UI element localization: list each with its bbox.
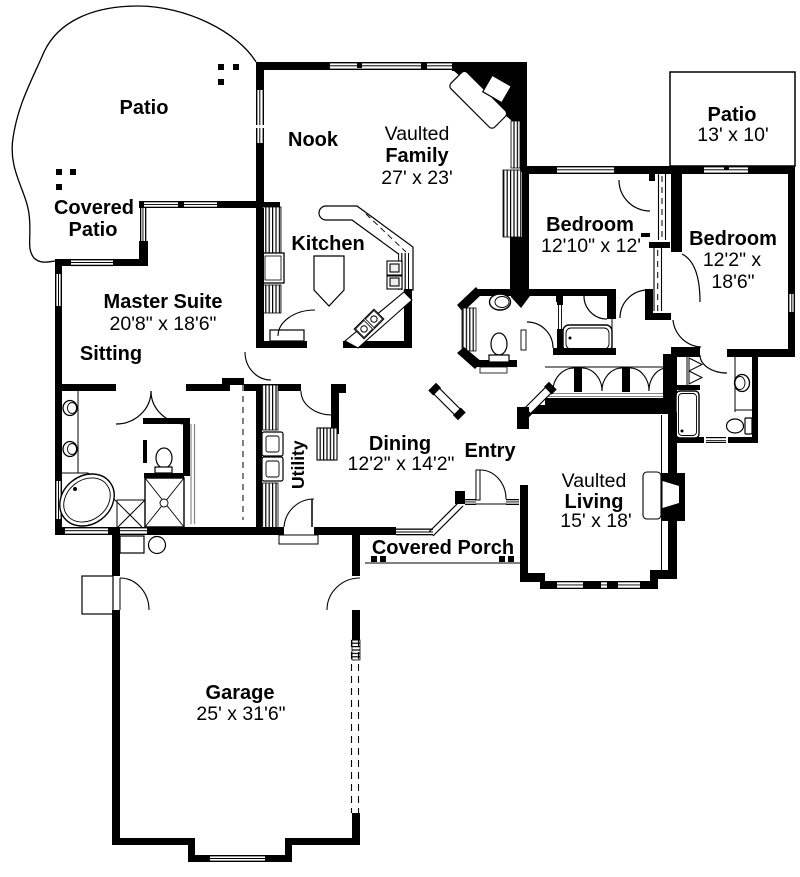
- svg-text:Bedroom: Bedroom: [689, 228, 777, 250]
- svg-text:Master Suite: Master Suite: [104, 291, 223, 313]
- svg-text:12'10" x 12': 12'10" x 12': [541, 235, 641, 257]
- svg-text:13' x 10': 13' x 10': [697, 124, 768, 146]
- svg-text:Patio: Patio: [708, 104, 757, 126]
- svg-text:25' x 31'6": 25' x 31'6": [196, 703, 285, 725]
- svg-text:15' x 18': 15' x 18': [560, 510, 631, 532]
- svg-text:Dining: Dining: [369, 433, 431, 455]
- svg-text:Sitting: Sitting: [80, 343, 142, 365]
- svg-text:Covered Porch: Covered Porch: [372, 537, 514, 559]
- svg-text:20'8" x 18'6": 20'8" x 18'6": [110, 313, 217, 335]
- svg-text:Patio: Patio: [69, 219, 118, 241]
- svg-text:12'2" x: 12'2" x: [703, 249, 762, 271]
- svg-text:18'6": 18'6": [711, 271, 754, 293]
- svg-text:27' x 23': 27' x 23': [381, 167, 452, 189]
- svg-text:Kitchen: Kitchen: [291, 233, 364, 255]
- svg-text:12'2" x 14'2": 12'2" x 14'2": [348, 453, 455, 475]
- svg-text:Covered: Covered: [54, 197, 134, 219]
- svg-text:Bedroom: Bedroom: [546, 214, 634, 236]
- svg-text:Patio: Patio: [120, 97, 169, 119]
- svg-text:Nook: Nook: [288, 129, 339, 151]
- svg-text:Vaulted: Vaulted: [562, 470, 627, 492]
- svg-text:Garage: Garage: [206, 682, 275, 704]
- svg-text:Utility: Utility: [288, 440, 308, 489]
- svg-text:Vaulted: Vaulted: [385, 123, 450, 145]
- svg-text:Entry: Entry: [464, 440, 516, 462]
- svg-text:Family: Family: [385, 145, 449, 167]
